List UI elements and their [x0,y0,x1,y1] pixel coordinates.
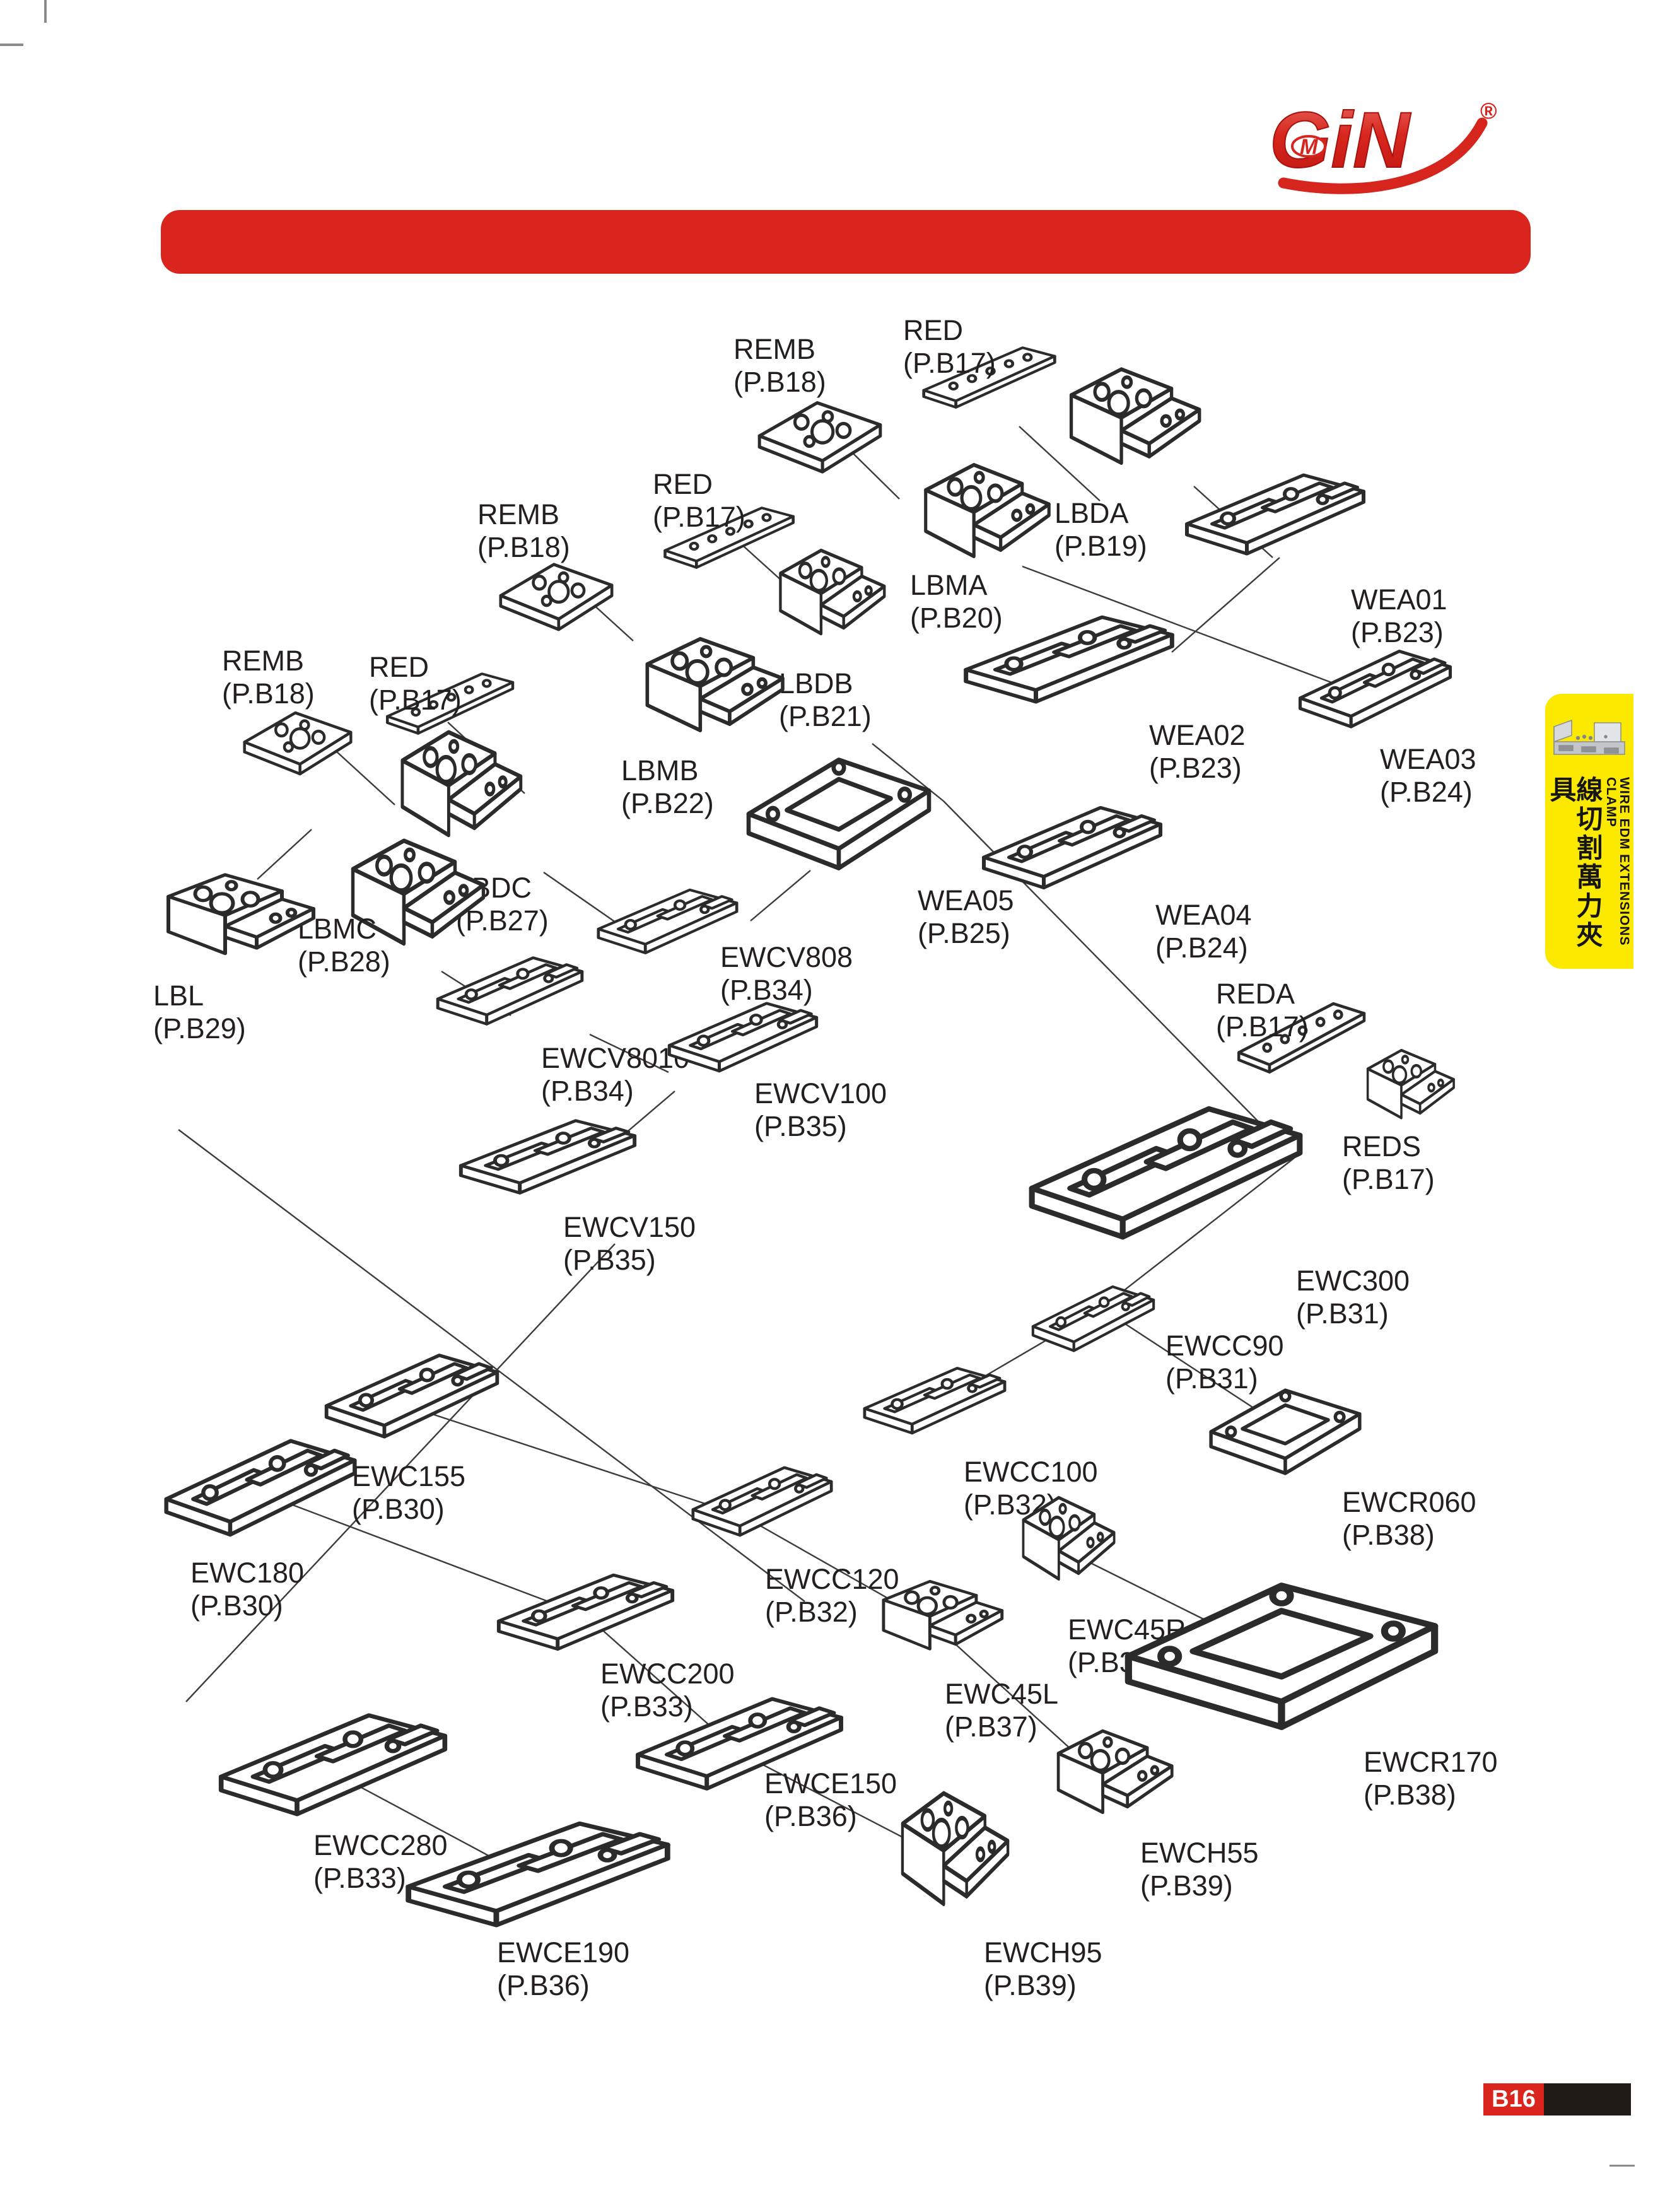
part-name: EWCH55 [1140,1837,1259,1869]
part-page-ref: (P.B17) [1216,1010,1309,1043]
part-page-ref: (P.B22) [621,787,714,820]
ewcc90-drawing [1029,1278,1158,1366]
reds-drawing [1347,1043,1459,1137]
part-page-ref: (P.B24) [1380,776,1476,809]
part-label-ewc300-24: EWC300(P.B31) [1296,1265,1410,1330]
part-name: EWC300 [1296,1265,1410,1297]
part-name: WEA02 [1149,719,1246,751]
part-name: REDS [1342,1130,1421,1162]
part-label-lbdb-9: LBDB(P.B21) [779,667,872,733]
part-name: WEA03 [1380,743,1476,775]
part-page-ref: (P.B38) [1342,1519,1476,1552]
part-page-ref: (P.B17) [903,347,996,380]
part-page-ref: (P.B35) [563,1244,696,1277]
part-name: EWCV100 [754,1077,887,1109]
wea01-drawing [1181,464,1370,573]
part-label-ewcr060-29: EWCR060(P.B38) [1342,1486,1476,1552]
part-page-ref: (P.B29) [153,1012,246,1045]
part-label-reds-20: REDS(P.B17) [1342,1130,1435,1196]
side-tab-title-en: WIRE EDM EXTENSIONS CLAMP [1604,777,1631,965]
part-name: REMB [477,498,559,530]
side-tab-title-zh: 線切割萬力夾具 [1548,776,1601,965]
part-name: RED [653,468,713,500]
catalog-page: GiN M ® REMB(P.B18)RED(P.B17)RED(P.B17)R… [0,0,1653,2212]
ewce190-drawing [399,1810,677,1950]
part-page-ref: (P.B38) [1364,1779,1498,1811]
part-label-wea02-11: WEA02(P.B23) [1149,719,1246,785]
part-name: LBMA [910,569,988,601]
part-page-ref: (P.B31) [1296,1297,1410,1330]
part-page-ref: (P.B35) [754,1110,887,1143]
part-page-ref: (P.B19) [1054,530,1147,563]
parts-diagram: REMB(P.B18)RED(P.B17)RED(P.B17)REMB(P.B1… [0,0,1653,2212]
part-page-ref: (P.B39) [984,1969,1102,2002]
part-name: EWCC100 [964,1456,1098,1488]
remb-drawing [741,383,899,494]
part-name: EWCR060 [1342,1486,1476,1518]
ewch95-drawing [877,1782,1015,1934]
part-label-remb-3: REMB(P.B18) [477,498,570,564]
part-label-red-2: RED(P.B17) [653,468,745,534]
lbl-drawing [134,867,323,975]
ewc180-drawing [160,1428,361,1557]
part-page-ref: (P.B30) [190,1589,304,1622]
part-name: EWCH95 [984,1936,1102,1969]
part-label-lbl-19: LBL(P.B29) [153,980,246,1045]
part-page-ref: (P.B17) [369,684,462,717]
wea02-drawing [959,606,1179,722]
part-name: EWC45L [945,1678,1058,1710]
part-name: RED [369,651,429,683]
part-label-lbda-4: LBDA(P.B19) [1054,497,1147,563]
part-page-ref: (P.B24) [1155,932,1252,964]
lbma-drawing [896,455,1057,582]
part-name: REDA [1216,978,1295,1010]
ewch55-drawing [1031,1723,1179,1835]
wea04-drawing [978,797,1167,907]
part-name: EWCR170 [1364,1746,1498,1778]
part-page-ref: (P.B23) [1149,752,1246,785]
part-label-ewc155-26: EWC155(P.B30) [352,1460,465,1526]
part-label-red-8: RED(P.B17) [369,651,462,717]
part-label-ewcv100-22: EWCV100(P.B35) [754,1077,887,1143]
part-name: LBL [153,980,204,1012]
part-label-ewcr170-34: EWCR170(P.B38) [1364,1746,1498,1811]
part-name: EWCC200 [600,1658,735,1690]
part-name: WEA04 [1155,899,1252,931]
part-page-ref: (P.B18) [733,366,826,399]
ewcc120-drawing [688,1458,836,1552]
ewcv100-drawing [664,994,822,1087]
ewc45l-drawing [855,1574,1010,1668]
part-page-ref: (P.B25) [918,917,1014,950]
part-label-remb-0: REMB(P.B18) [733,333,826,399]
part-label-remb-7: REMB(P.B18) [222,645,315,710]
part-label-wea01-6: WEA01(P.B23) [1351,583,1447,649]
part-label-wea03-12: WEA03(P.B24) [1380,743,1476,809]
part-label-ewch95-39: EWCH95(P.B39) [984,1936,1102,2002]
category-side-tab: 線切割萬力夾具 WIRE EDM EXTENSIONS CLAMP [1545,694,1633,969]
wea03-drawing [1295,641,1456,745]
part-label-lbmb-10: LBMB(P.B22) [621,754,714,820]
ewcc200-drawing [493,1565,679,1667]
part-page-ref: (P.B30) [352,1493,465,1526]
part-name: REMB [222,645,304,677]
ewc45r-drawing [1002,1489,1120,1601]
footer-black-bar [1544,2083,1631,2115]
part-name: EWCE190 [497,1936,629,1969]
part-name: LBDA [1054,497,1129,529]
part-page-ref: (P.B21) [779,700,872,733]
ewcr060-drawing [1200,1372,1371,1491]
part-name: WEA01 [1351,583,1447,616]
part-page-ref: (P.B36) [497,1969,629,2002]
part-page-ref: (P.B17) [1342,1163,1435,1196]
part-label-ewce190-38: EWCE190(P.B36) [497,1936,629,2002]
ewcc100-drawing [860,1359,1010,1449]
page-number-badge: B16 [1483,2083,1544,2115]
part-label-ewc180-28: EWC180(P.B30) [190,1557,304,1622]
clamp-photo-icon [1550,714,1628,763]
ewcv8010-drawing [433,949,587,1040]
part-page-ref: (P.B18) [222,677,315,710]
part-label-red-1: RED(P.B17) [903,314,996,380]
part-name: EWCV808 [720,941,853,973]
part-name: RED [903,314,963,346]
part-name: EWC155 [352,1460,465,1492]
part-label-ewch55-37: EWCH55(P.B39) [1140,1837,1259,1902]
part-name: EWCC90 [1165,1330,1284,1362]
part-name: LBMB [621,754,699,787]
part-name: EWCV150 [563,1211,696,1243]
ewcv150-drawing [455,1111,641,1210]
ewc300-drawing [1022,1091,1309,1268]
part-name: REMB [733,333,815,365]
part-name: EWC180 [190,1557,304,1589]
ewcv808-drawing [593,881,742,968]
part-label-reda-18: REDA(P.B17) [1216,978,1309,1043]
part-page-ref: (P.B17) [653,501,745,534]
part-page-ref: (P.B18) [477,531,570,564]
part-label-wea04-15: WEA04(P.B24) [1155,899,1252,964]
wea05-drawing [735,737,943,891]
part-page-ref: (P.B39) [1140,1870,1259,1902]
part-label-ewcv150-23: EWCV150(P.B35) [563,1211,696,1277]
